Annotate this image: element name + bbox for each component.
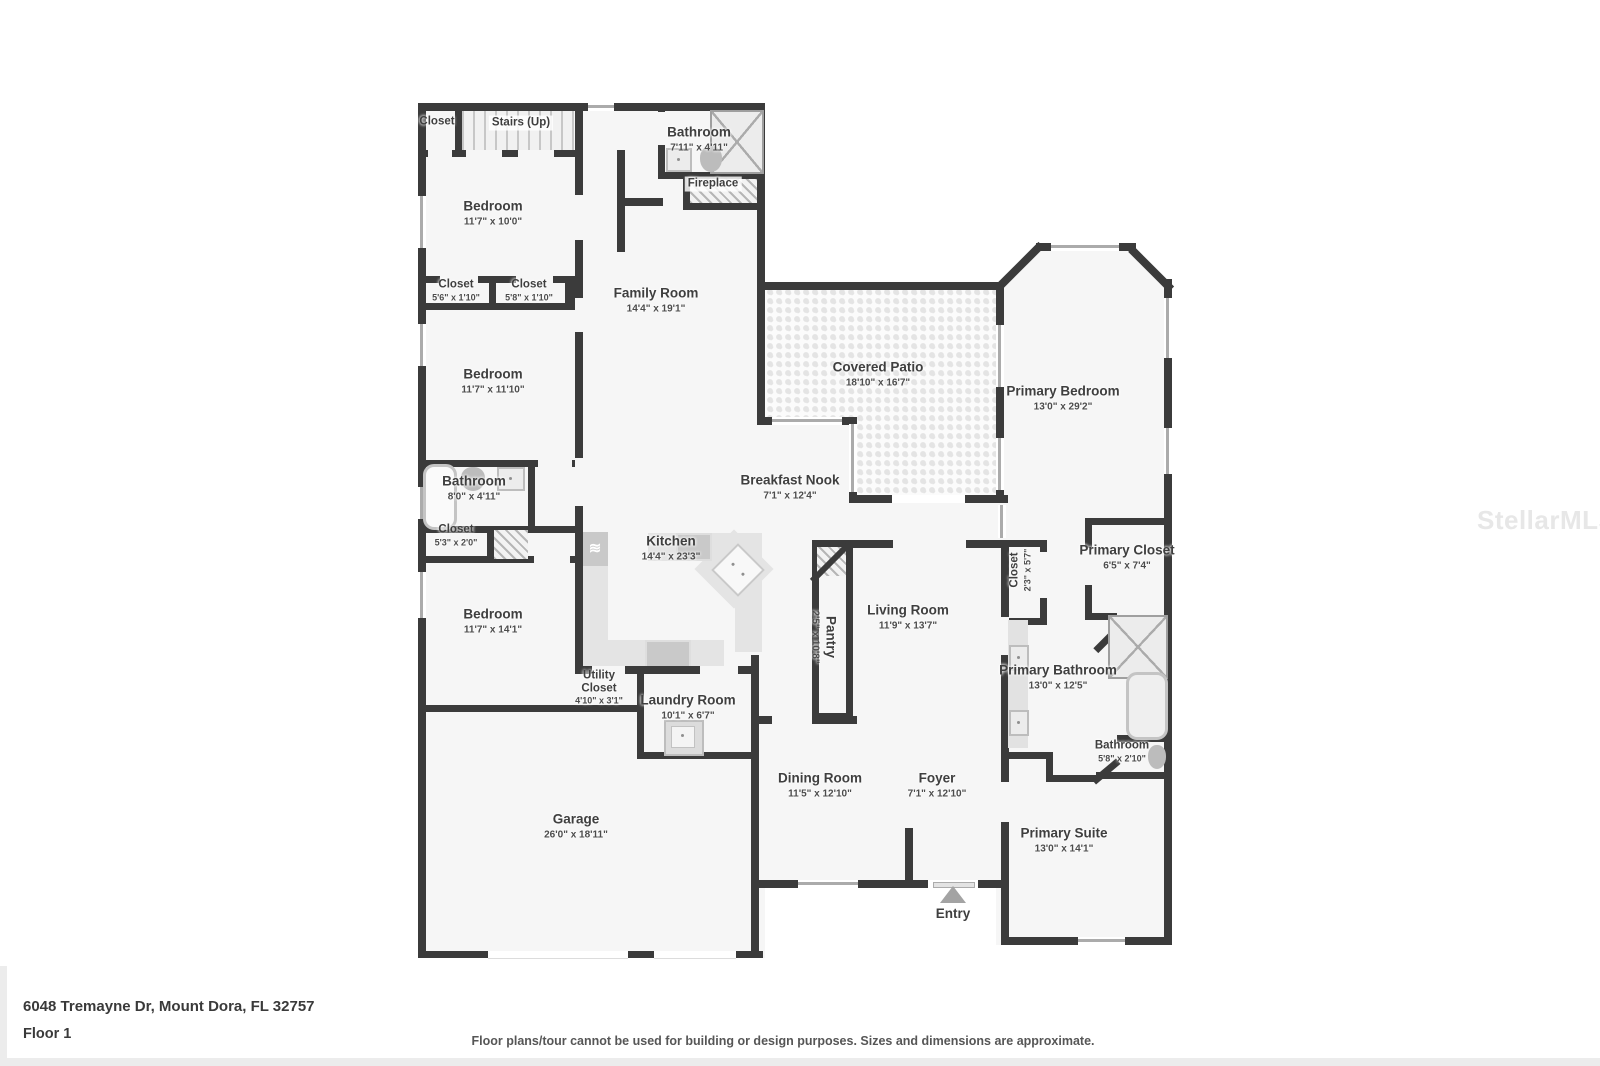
wall — [683, 203, 765, 210]
wall — [617, 150, 625, 252]
wall — [757, 282, 1004, 290]
entry-arrow-icon — [940, 886, 966, 903]
garage-door-opening — [654, 951, 736, 959]
door-opening — [1001, 782, 1009, 822]
room-label-family-room: Family Room14'4" x 19'1" — [614, 285, 699, 316]
room-label-closet-3: Closet5'3" x 2'0" — [435, 523, 478, 550]
room-label-closet-4: Closet2'3" x 5'7" — [1008, 549, 1035, 592]
page-edge-left — [0, 966, 7, 1066]
wall — [751, 655, 759, 958]
wall — [628, 951, 654, 958]
window — [1164, 428, 1172, 474]
property-address: 6048 Tremayne Dr, Mount Dora, FL 32757 — [23, 998, 315, 1015]
window — [996, 438, 1004, 490]
window — [418, 196, 426, 248]
room-label-closet-2: Closet5'8" x 1'10" — [505, 278, 553, 305]
window — [849, 424, 857, 492]
toilet-icon — [1148, 745, 1166, 769]
laundry-chute-hatch — [494, 530, 528, 559]
wall — [1046, 775, 1096, 782]
washer-icon — [664, 720, 704, 756]
window — [996, 325, 1004, 387]
door-opening — [428, 150, 452, 157]
door-opening — [700, 666, 738, 674]
floor-bay — [996, 243, 1172, 305]
kitchen-counter-left — [582, 566, 608, 644]
window — [1164, 298, 1172, 358]
wall — [418, 951, 488, 958]
door-opening — [575, 195, 583, 240]
window — [418, 572, 426, 618]
stellar-mls-watermark: StellarMLS — [1477, 505, 1600, 536]
room-label-laundry-room: Laundry Room10'1" x 6'7" — [640, 692, 735, 723]
door-opening — [518, 150, 554, 157]
range-icon — [645, 640, 691, 668]
door-opening — [772, 716, 812, 724]
room-label-utility-closet: Utility Closet4'10" x 3'1" — [566, 670, 632, 707]
door-opening — [658, 112, 665, 145]
wall — [489, 276, 496, 310]
room-label-primary-closet: Primary Closet6'5" x 7'4" — [1079, 542, 1174, 573]
floorplan-canvas: ≋ — [0, 0, 1600, 1066]
room-label-dining-room: Dining Room11'5" x 12'10" — [778, 770, 862, 801]
door-opening — [466, 150, 502, 157]
window — [1078, 937, 1125, 945]
door-opening — [534, 556, 570, 563]
room-label-closet-stairs: Closet — [419, 115, 454, 130]
window — [418, 324, 426, 366]
floor-label: Floor 1 — [23, 1026, 71, 1042]
room-label-fireplace: Fireplace — [685, 177, 742, 192]
patio-opening — [892, 495, 965, 503]
bathtub-icon — [1126, 672, 1168, 740]
wall — [625, 198, 663, 206]
window — [588, 103, 614, 111]
room-label-living-room: Living Room11'9" x 13'7" — [867, 602, 949, 633]
room-label-breakfast-nook: Breakfast Nook7'1" x 12'4" — [740, 472, 839, 503]
room-label-bedroom-3: Bedroom11'7" x 14'1" — [463, 606, 522, 637]
door-opening — [575, 298, 583, 332]
room-label-primary-suite: Primary Suite13'0" x 14'1" — [1020, 825, 1107, 856]
wall — [528, 467, 535, 528]
wall — [565, 276, 575, 310]
room-label-garage: Garage26'0" x 18'11" — [544, 811, 608, 842]
wall — [575, 103, 583, 674]
room-label-bathroom-upper: Bathroom7'11" x 4'11" — [667, 124, 731, 155]
disclaimer-text: Floor plans/tour cannot be used for buil… — [471, 1034, 1094, 1048]
window — [798, 880, 858, 888]
room-label-bedroom-2: Bedroom11'7" x 11'10" — [461, 366, 524, 397]
room-label-entry: Entry — [936, 905, 971, 923]
room-label-bathroom-toilet: Bathroom5'8" x 2'10" — [1095, 739, 1149, 766]
wall — [905, 828, 913, 888]
room-label-stairs: Stairs (Up) — [489, 116, 553, 131]
wall — [455, 103, 462, 150]
wall — [849, 540, 893, 548]
wall — [736, 951, 763, 958]
door-opening — [1040, 552, 1047, 598]
room-label-primary-bedroom: Primary Bedroom13'0" x 29'2" — [1006, 383, 1119, 414]
room-label-closet-1: Closet5'6" x 1'10" — [432, 278, 480, 305]
room-label-pantry: Pantry2'5" x 10'8" — [809, 610, 840, 663]
room-label-foyer: Foyer7'1" x 12'10" — [908, 770, 967, 801]
room-label-primary-bathroom: Primary Bathroom13'0" x 12'5" — [999, 662, 1117, 693]
room-label-bedroom-1: Bedroom11'7" x 10'0" — [463, 198, 522, 229]
room-label-kitchen: Kitchen14'4" x 23'3" — [642, 533, 701, 564]
window — [998, 505, 1006, 538]
door-opening — [575, 458, 583, 506]
wall — [1085, 518, 1172, 525]
sink-icon — [1009, 710, 1029, 736]
window — [772, 417, 842, 425]
page-edge-bottom — [0, 1058, 1600, 1066]
room-label-bathroom-left: Bathroom8'0" x 4'11" — [442, 473, 506, 504]
door-opening — [538, 460, 572, 467]
wall — [846, 542, 853, 720]
room-label-covered-patio: Covered Patio18'10" x 16'7" — [833, 359, 924, 390]
fridge-icon: ≋ — [582, 532, 608, 568]
window — [1051, 243, 1119, 251]
wall — [1164, 279, 1172, 945]
garage-door-opening — [488, 951, 628, 959]
wall — [487, 526, 494, 563]
